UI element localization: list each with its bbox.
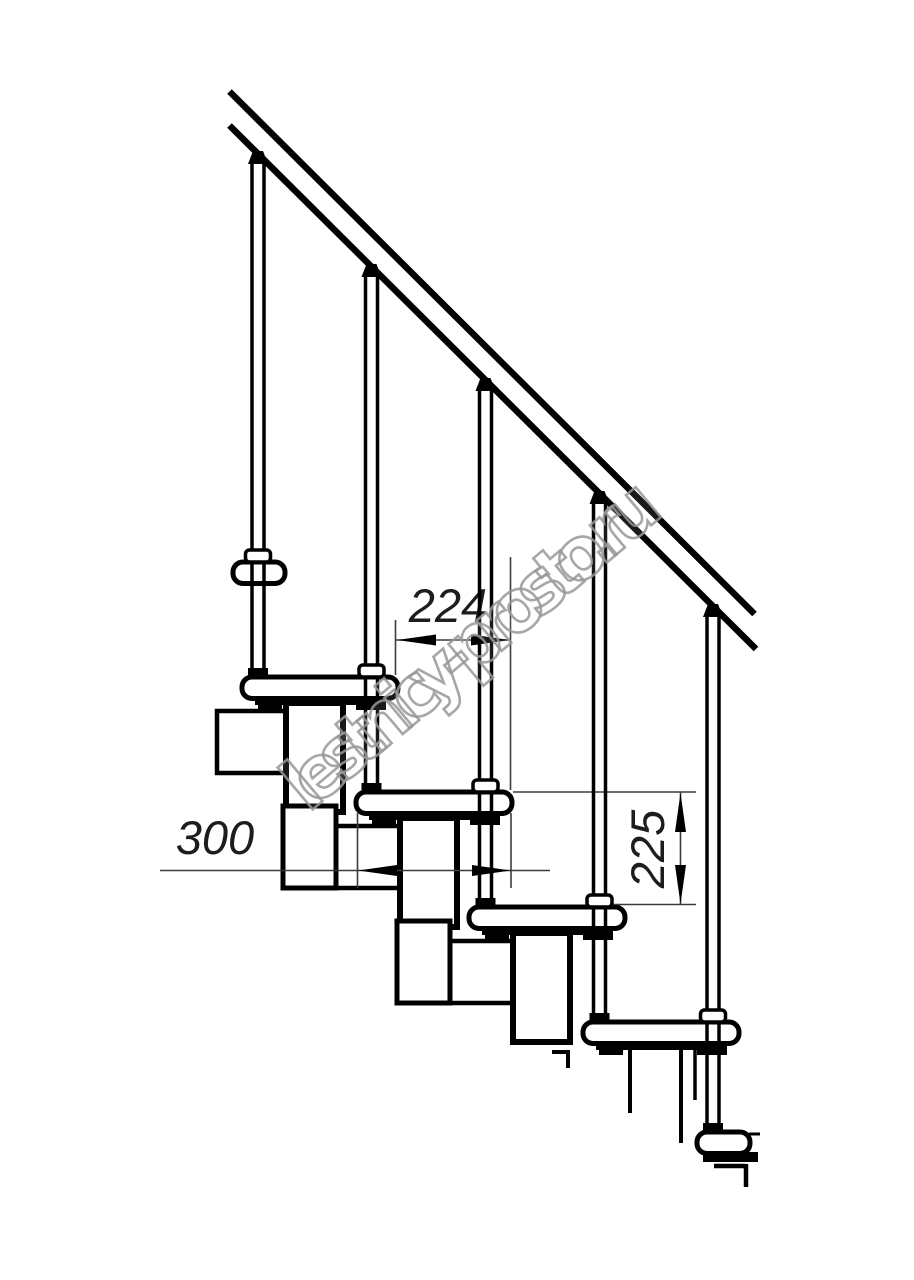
dim-tread-depth-value: 300 <box>176 811 254 864</box>
baluster-rail-cap <box>362 264 382 277</box>
tread <box>583 1022 739 1044</box>
baluster-foot <box>362 783 382 792</box>
short-tread <box>697 1132 750 1154</box>
dim-step-run-value: 224 <box>408 579 487 632</box>
module-riser-box <box>513 933 570 1042</box>
arrowhead-down <box>675 865 686 904</box>
baluster-collar <box>359 665 384 677</box>
arrowhead-left <box>397 635 436 646</box>
baluster-foot <box>590 1013 610 1022</box>
module-riser-box <box>400 818 457 927</box>
baluster-foot <box>248 668 268 677</box>
baluster-collar <box>587 895 612 907</box>
arrowhead-up <box>675 793 686 832</box>
baluster-collar <box>701 1010 726 1022</box>
baluster-collar <box>473 780 498 792</box>
module-riser-box <box>286 703 343 812</box>
module-box <box>217 711 291 773</box>
baluster-foot <box>703 1123 723 1132</box>
module-box <box>444 941 518 1003</box>
tread <box>469 907 625 929</box>
drawing-page: 224 300 225 <box>0 0 914 1280</box>
short-tread <box>233 562 285 584</box>
module-lower-box <box>397 921 450 1003</box>
baluster-rail-cap <box>248 151 268 164</box>
module-box <box>331 826 405 888</box>
tread <box>242 677 398 699</box>
tread-underside <box>703 1152 758 1162</box>
module-hook-line <box>552 1052 570 1068</box>
baluster-rail-cap <box>590 491 610 504</box>
baluster-rail-cap <box>476 378 496 391</box>
tread <box>356 792 512 814</box>
baluster-collar <box>246 550 271 562</box>
baluster-foot <box>476 898 496 907</box>
baluster-rail-cap <box>703 604 723 617</box>
staircase-technical-drawing: 224 300 225 <box>0 0 914 1280</box>
break-lines-layer <box>552 1044 760 1187</box>
module-lower-box <box>283 806 336 888</box>
dim-riser-height-value: 225 <box>621 809 674 889</box>
